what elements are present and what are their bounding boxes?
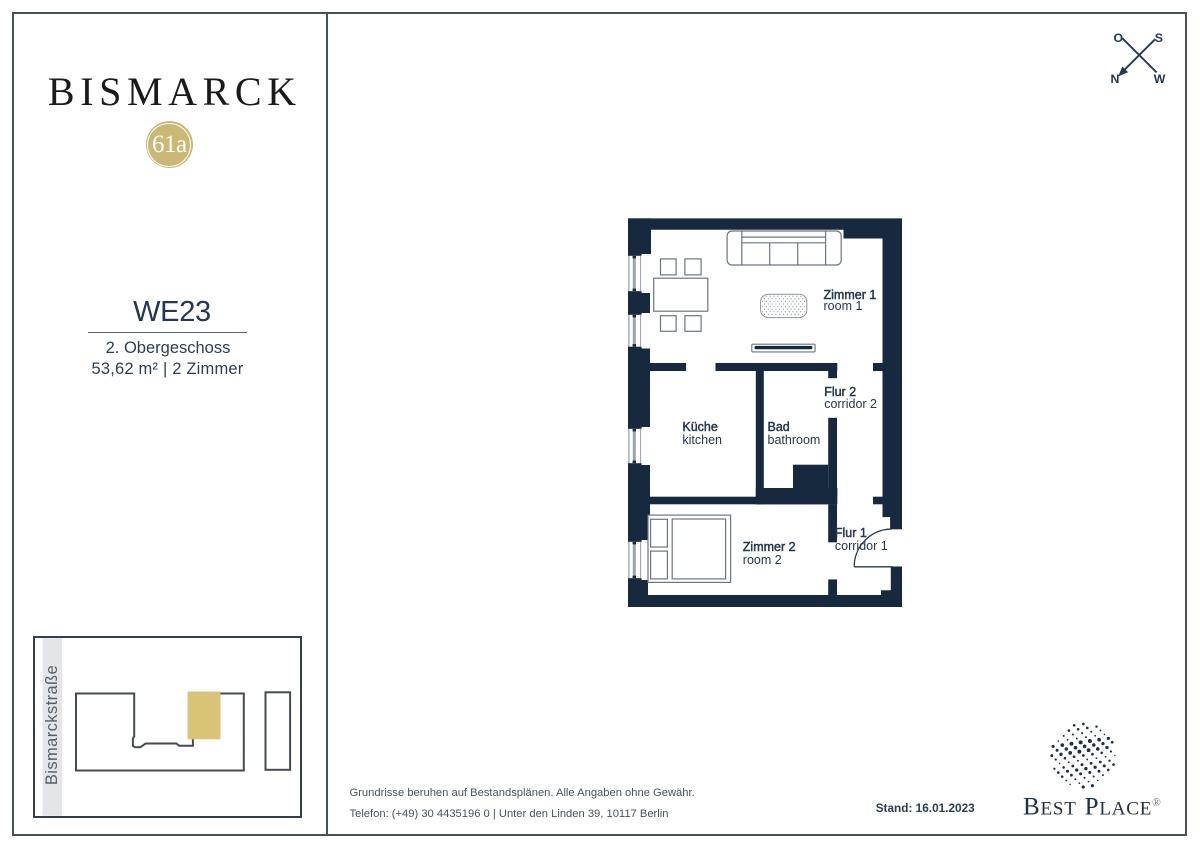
svg-text:O: O [1114,31,1124,45]
svg-text:N: N [1111,72,1120,86]
svg-text:S: S [1155,31,1163,45]
svg-text:W: W [1154,72,1166,86]
svg-text:Bismarckstraße: Bismarckstraße [43,665,61,785]
